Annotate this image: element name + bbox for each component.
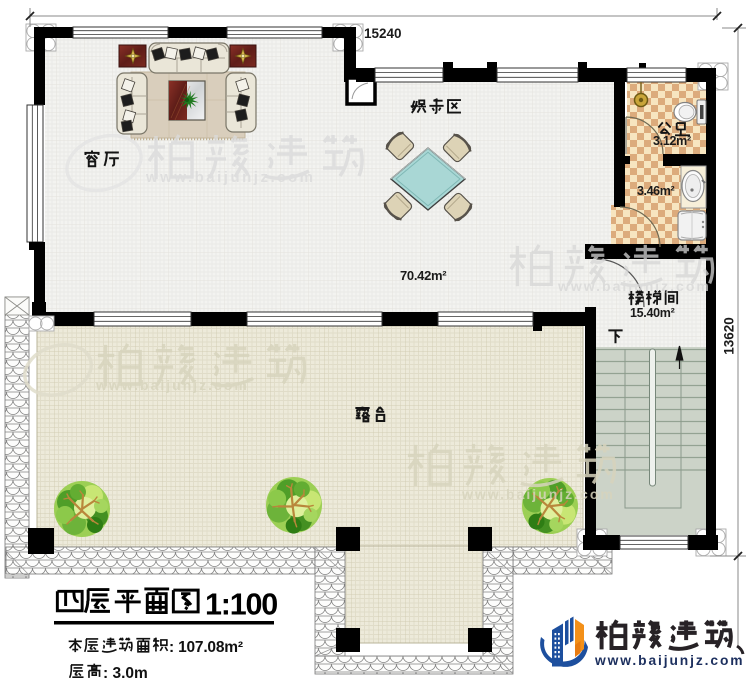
svg-text:www.baijunjz.com: www.baijunjz.com [461, 486, 615, 502]
svg-text:15.40m²: 15.40m² [630, 306, 675, 320]
svg-text:1:100: 1:100 [205, 588, 277, 622]
svg-text:15240: 15240 [364, 26, 402, 41]
svg-text:13620: 13620 [722, 317, 737, 355]
svg-text:www.baijunjz.com: www.baijunjz.com [557, 278, 711, 294]
svg-text:: 3.0m: : 3.0m [103, 665, 148, 682]
svg-text:3.12m²: 3.12m² [653, 134, 691, 148]
svg-text:3.46m²: 3.46m² [637, 184, 674, 198]
svg-text:www.baijunjz.com: www.baijunjz.com [95, 377, 249, 393]
svg-text:70.42m²: 70.42m² [400, 268, 447, 283]
svg-text:www.baijunjz.com: www.baijunjz.com [594, 653, 744, 668]
svg-text:www.baijunjz.com: www.baijunjz.com [145, 169, 315, 186]
svg-text:: 107.08m²: : 107.08m² [169, 639, 243, 656]
